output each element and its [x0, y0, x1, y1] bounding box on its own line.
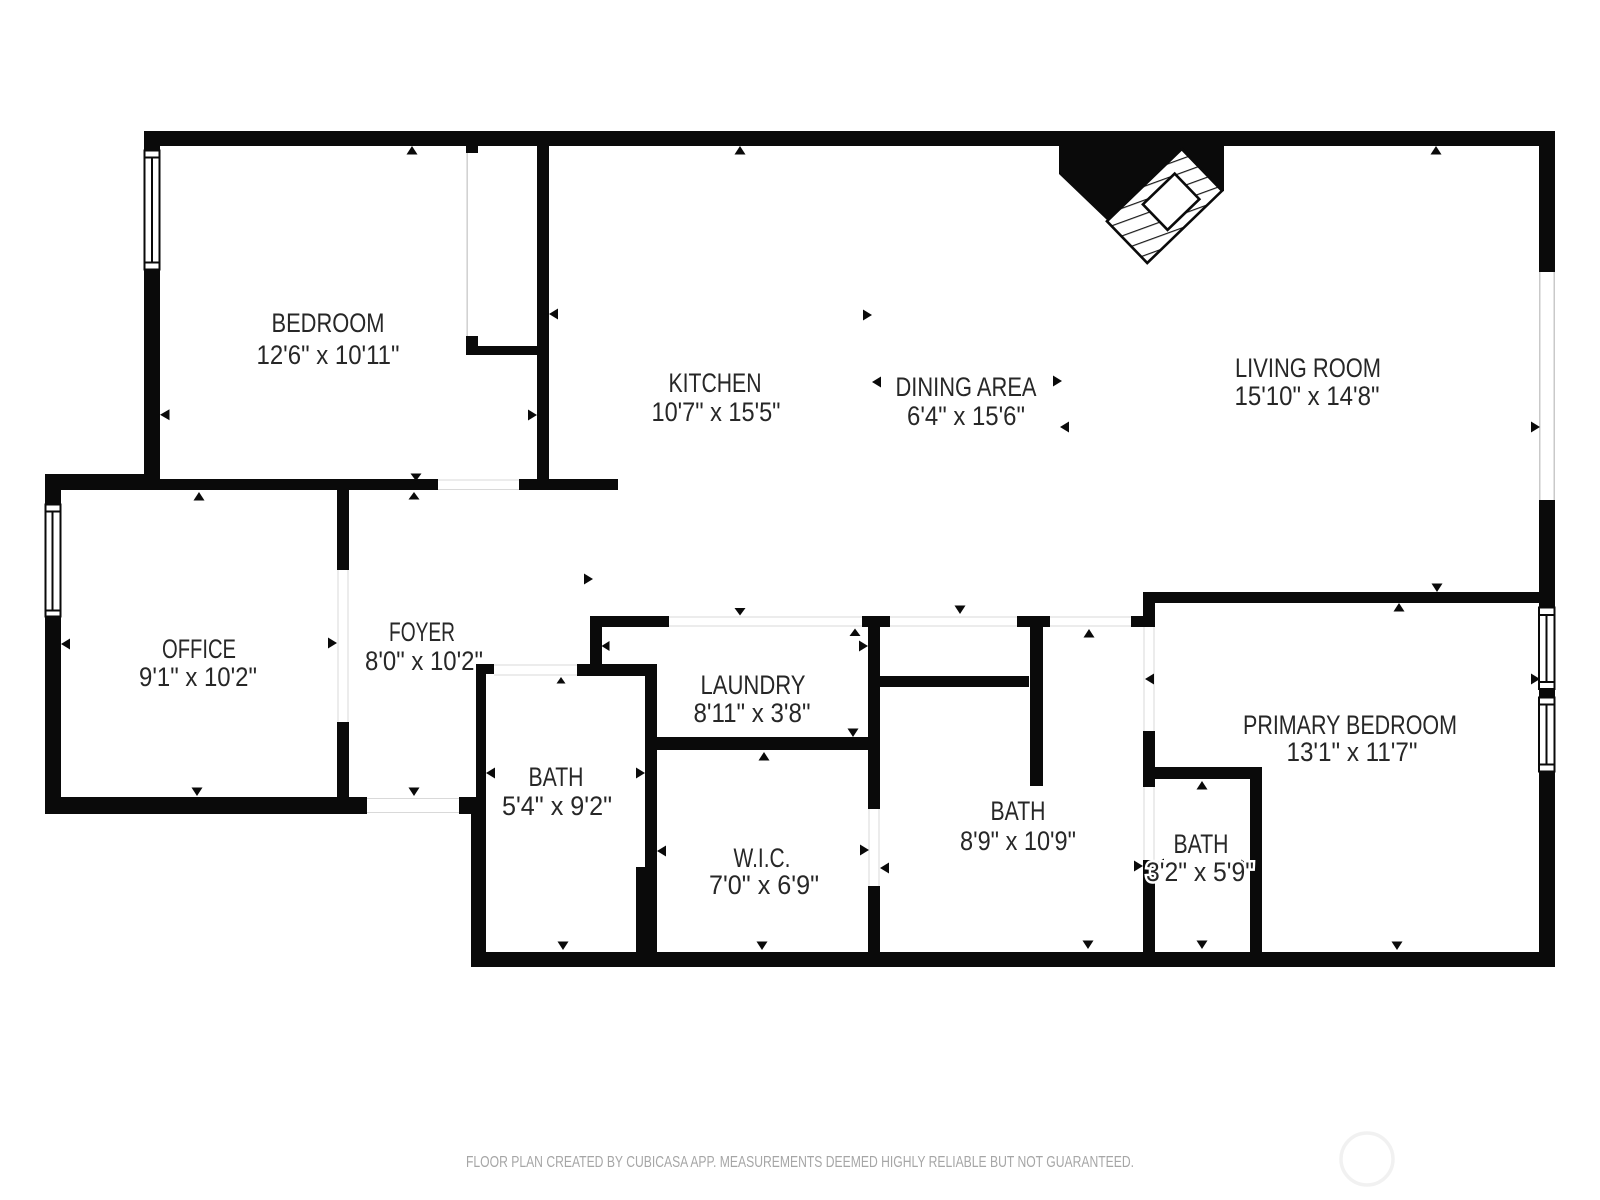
- svg-text:6'4" x 15'6": 6'4" x 15'6": [907, 401, 1025, 431]
- svg-text:5'4" x 9'2": 5'4" x 9'2": [502, 791, 612, 821]
- svg-text:9'1" x 10'2": 9'1" x 10'2": [139, 662, 257, 692]
- svg-text:KITCHEN: KITCHEN: [669, 368, 762, 398]
- svg-text:PRIMARY BEDROOM: PRIMARY BEDROOM: [1243, 710, 1457, 740]
- svg-text:8'11" x 3'8": 8'11" x 3'8": [694, 698, 811, 728]
- svg-text:LIVING ROOM: LIVING ROOM: [1235, 353, 1381, 383]
- svg-text:13'1" x 11'7": 13'1" x 11'7": [1287, 737, 1418, 767]
- svg-text:BATH: BATH: [991, 796, 1046, 826]
- svg-text:7'0" x 6'9": 7'0" x 6'9": [709, 870, 819, 900]
- svg-text:BATH: BATH: [529, 762, 584, 792]
- svg-text:15'10" x 14'8": 15'10" x 14'8": [1235, 381, 1380, 411]
- svg-text:BATH: BATH: [1174, 829, 1229, 859]
- svg-text:OFFICE: OFFICE: [162, 634, 236, 664]
- svg-text:10'7" x 15'5": 10'7" x 15'5": [652, 397, 781, 427]
- svg-text:3'2" x 5'9": 3'2" x 5'9": [1146, 857, 1254, 887]
- svg-text:8'0" x 10'2": 8'0" x 10'2": [365, 646, 483, 676]
- svg-text:LAUNDRY: LAUNDRY: [701, 670, 806, 700]
- svg-text:FLOOR PLAN CREATED BY CUBICASA: FLOOR PLAN CREATED BY CUBICASA APP. MEAS…: [466, 1154, 1134, 1171]
- svg-text:FOYER: FOYER: [389, 617, 455, 647]
- svg-text:12'6" x 10'11": 12'6" x 10'11": [257, 340, 400, 370]
- svg-text:8'9" x 10'9": 8'9" x 10'9": [960, 826, 1076, 856]
- svg-text:DINING AREA: DINING AREA: [896, 372, 1037, 402]
- svg-text:BEDROOM: BEDROOM: [272, 308, 385, 338]
- svg-text:W.I.C.: W.I.C.: [734, 843, 791, 873]
